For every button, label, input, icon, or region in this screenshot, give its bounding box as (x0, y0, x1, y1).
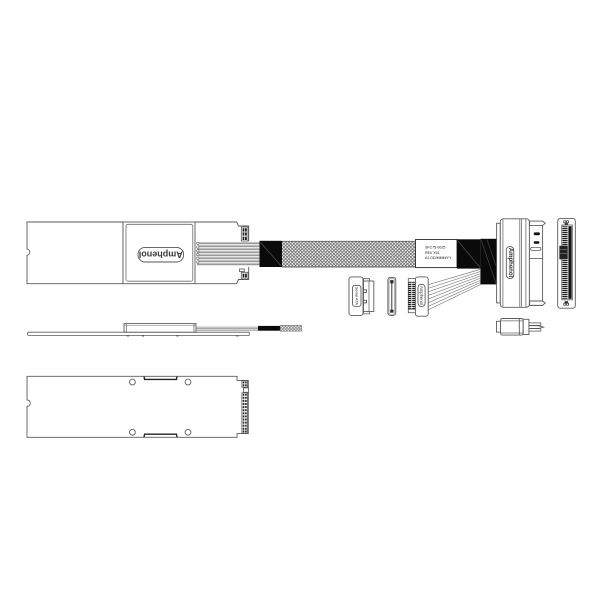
svg-text:Amphenol: Amphenol (139, 250, 183, 260)
svg-text:Amphenol: Amphenol (419, 286, 424, 305)
svg-text:SFC75-0025: SFC75-0025 (425, 246, 445, 250)
svg-text:Amphenol: Amphenol (507, 248, 513, 278)
svg-text:A1 DD/MMM/YY: A1 DD/MMM/YY (425, 256, 452, 260)
svg-text:Serial ATA: Serial ATA (354, 287, 359, 306)
svg-text:REV X01: REV X01 (425, 251, 440, 255)
